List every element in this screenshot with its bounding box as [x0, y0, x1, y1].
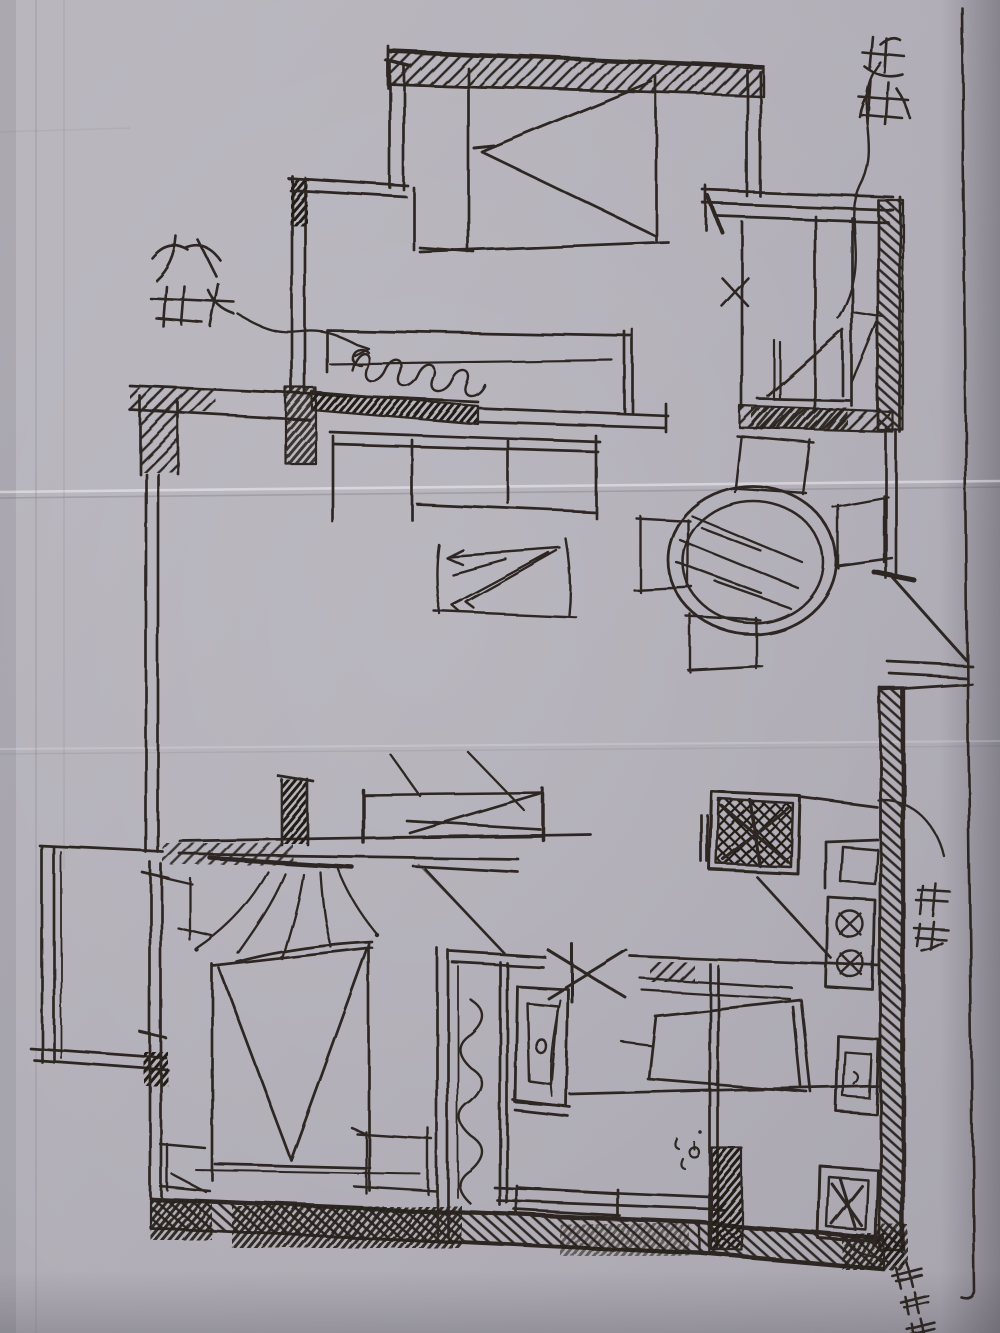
- floor-plan-sketch-photo: [0, 0, 1000, 1333]
- sketch-canvas: [0, 0, 1000, 1333]
- wall-right-kitchen-hatched: [876, 688, 908, 1265]
- wall-right-upper-hatched: [878, 197, 903, 432]
